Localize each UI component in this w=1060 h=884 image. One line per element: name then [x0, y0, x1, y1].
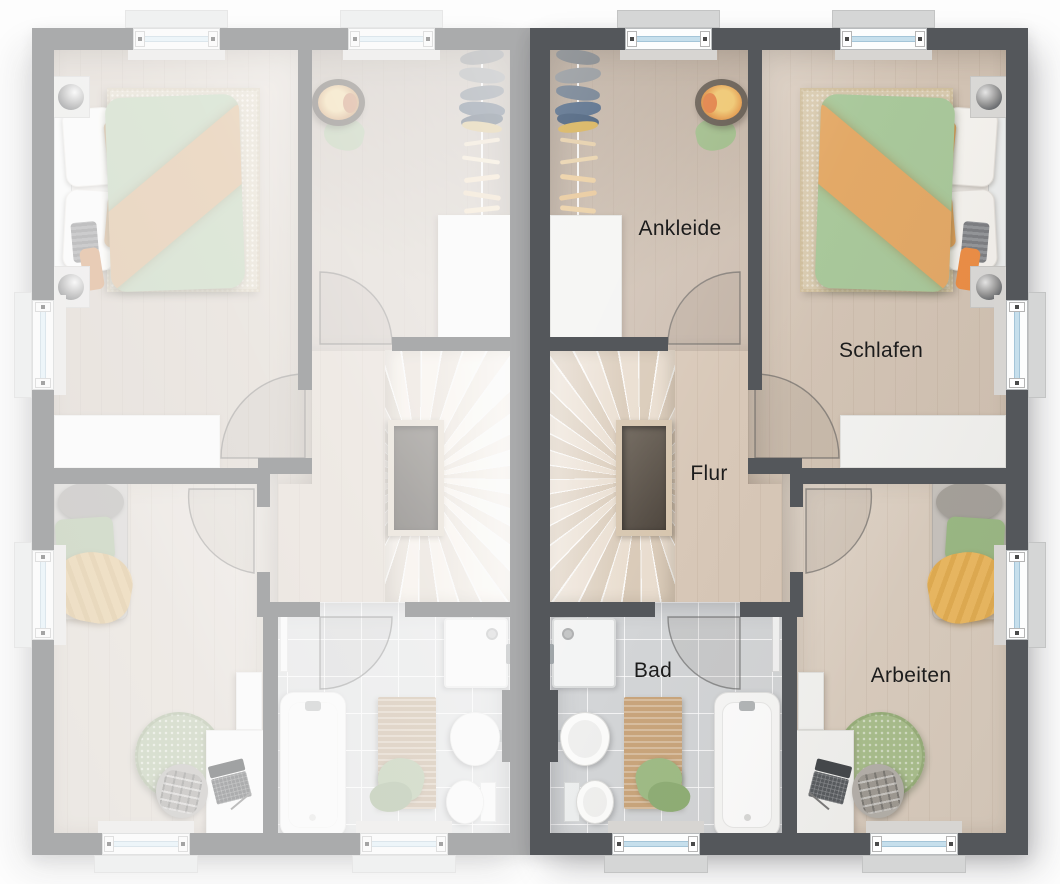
window-exterior-sill — [340, 10, 443, 28]
window-exterior-sill — [352, 855, 456, 873]
window-handle — [842, 31, 852, 47]
window-handle — [700, 31, 710, 47]
window-handle — [35, 302, 51, 312]
room-label-bad: Bad — [634, 659, 672, 683]
window-glass — [365, 841, 443, 847]
exterior-wall-side — [1006, 28, 1028, 855]
window-bottom-1 — [360, 833, 448, 855]
exterior-wall-top — [530, 28, 1028, 50]
room-label-flur: Flur — [690, 462, 727, 486]
window-sill — [608, 821, 704, 833]
window-sill — [994, 295, 1006, 395]
window-sill — [866, 821, 962, 833]
window-handle — [35, 628, 51, 638]
window-exterior-sill — [125, 10, 228, 28]
window-handle — [135, 31, 145, 47]
window-glass — [107, 841, 185, 847]
window-exterior-sill — [14, 292, 32, 398]
window-sill — [620, 50, 717, 60]
unit-left — [10, 0, 530, 884]
window-handle — [1009, 302, 1025, 312]
window-handle — [104, 836, 114, 852]
window-glass — [875, 841, 953, 847]
window-side-2 — [32, 550, 54, 640]
window-glass — [630, 36, 707, 42]
window-handle — [350, 31, 360, 47]
window-side-1 — [1006, 300, 1028, 390]
window-top-2 — [133, 28, 220, 50]
window-handle — [1009, 378, 1025, 388]
window-side-1 — [32, 300, 54, 390]
window-sill — [343, 50, 440, 60]
wall-ankleide-schlafen — [298, 50, 312, 390]
window-sill — [994, 545, 1006, 645]
window-exterior-sill — [1028, 542, 1046, 648]
window-sill — [54, 295, 66, 395]
window-top-2 — [840, 28, 927, 50]
wall-flur-schlafen — [258, 458, 312, 474]
window-handle — [35, 378, 51, 388]
wall-flur-arbeiten-upper — [257, 474, 270, 507]
door-bad — [320, 617, 392, 689]
wall-schlafen-arbeiten — [798, 468, 1006, 484]
window-side-2 — [1006, 550, 1028, 640]
room-label-ankleide: Ankleide — [639, 217, 722, 241]
room-label-arbeiten: Arbeiten — [871, 664, 952, 688]
window-glass — [138, 36, 215, 42]
door-schlafen — [755, 374, 839, 458]
window-handle — [35, 552, 51, 562]
wall-bad-left — [405, 602, 510, 617]
wall-bad-left — [550, 602, 655, 617]
window-glass — [1014, 305, 1020, 385]
window-glass — [40, 555, 46, 635]
door-bad — [668, 617, 740, 689]
unit-right: Ankleide Schlafen Flur Bad Arbeiten — [530, 0, 1050, 884]
window-glass — [845, 36, 922, 42]
window-exterior-sill — [832, 10, 935, 28]
window-sill — [128, 50, 225, 60]
door-schlafen — [221, 374, 305, 458]
window-exterior-sill — [14, 542, 32, 648]
wall-ankleide-flur — [392, 337, 510, 351]
window-glass — [1014, 555, 1020, 635]
window-sill — [356, 821, 452, 833]
floorplan-canvas: Ankleide Schlafen Flur Bad Arbeiten — [0, 0, 1060, 884]
window-glass — [40, 305, 46, 385]
window-glass — [353, 36, 430, 42]
window-sill — [835, 50, 932, 60]
wall-flur-schlafen — [748, 458, 802, 474]
window-handle — [872, 836, 882, 852]
window-bottom-2 — [102, 833, 190, 855]
door-ankleide — [320, 272, 392, 344]
window-top-1 — [625, 28, 712, 50]
window-handle — [178, 836, 188, 852]
window-handle — [423, 31, 433, 47]
window-handle — [688, 836, 698, 852]
window-exterior-sill — [1028, 292, 1046, 398]
room-label-schlafen: Schlafen — [839, 339, 923, 363]
wall-ankleide-flur — [550, 337, 668, 351]
window-sill — [98, 821, 194, 833]
wall-schlafen-arbeiten — [54, 468, 262, 484]
wall-bad-arbeiten — [263, 602, 278, 833]
wall-bad-arbeiten — [782, 602, 797, 833]
door-arbeiten — [806, 489, 871, 573]
window-handle — [208, 31, 218, 47]
window-handle — [436, 836, 446, 852]
window-handle — [362, 836, 372, 852]
window-bottom-1 — [612, 833, 700, 855]
window-handle — [1009, 552, 1025, 562]
window-exterior-sill — [604, 855, 708, 873]
window-handle — [1009, 628, 1025, 638]
window-sill — [54, 545, 66, 645]
window-exterior-sill — [862, 855, 966, 873]
wall-flur-arbeiten-upper — [790, 474, 803, 507]
window-handle — [946, 836, 956, 852]
door-arbeiten — [189, 489, 254, 573]
wall-duct-stub — [502, 690, 518, 762]
window-bottom-2 — [870, 833, 958, 855]
door-ankleide — [668, 272, 740, 344]
window-handle — [627, 31, 637, 47]
exterior-wall-top — [32, 28, 530, 50]
window-handle — [614, 836, 624, 852]
wall-ankleide-schlafen — [748, 50, 762, 390]
window-exterior-sill — [617, 10, 720, 28]
wall-duct-stub — [542, 690, 558, 762]
window-glass — [617, 841, 695, 847]
window-exterior-sill — [94, 855, 198, 873]
window-top-1 — [348, 28, 435, 50]
exterior-wall-side — [32, 28, 54, 855]
window-handle — [915, 31, 925, 47]
